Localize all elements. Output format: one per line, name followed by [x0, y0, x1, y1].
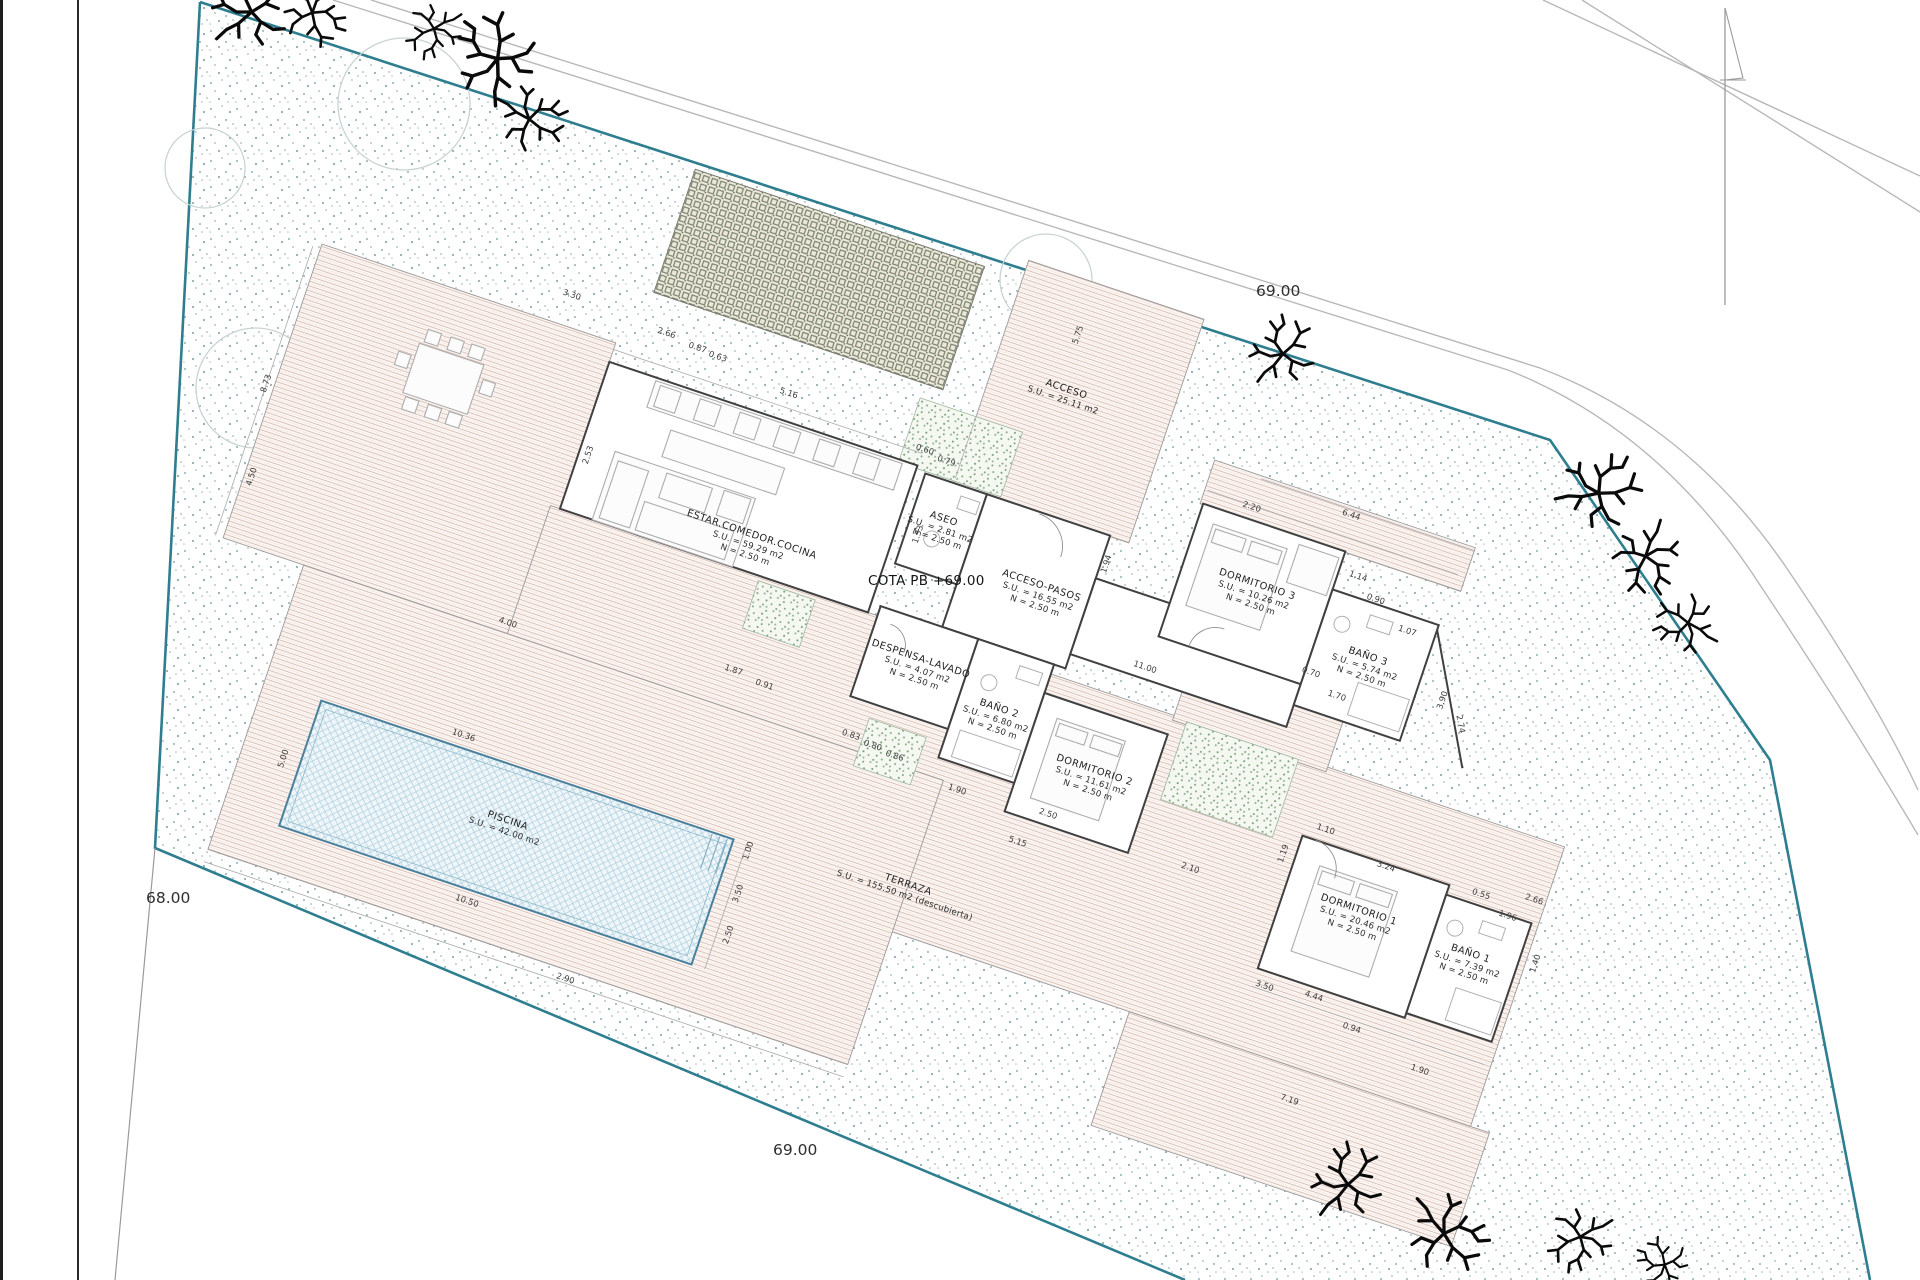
level-label-left: 68.00 — [146, 889, 190, 907]
site-plan-page: 3.302.660.870.630.600.795.168.734.502.53… — [0, 0, 1920, 1280]
level-label-bottom: 69.00 — [773, 1141, 817, 1159]
cota-label: COTA PB +69.00 — [868, 573, 985, 589]
sheet-edge — [0, 0, 3, 1280]
site-plan-drawing: 3.302.660.870.630.600.795.168.734.502.53… — [0, 0, 1920, 1280]
level-label-top: 69.00 — [1256, 282, 1300, 300]
